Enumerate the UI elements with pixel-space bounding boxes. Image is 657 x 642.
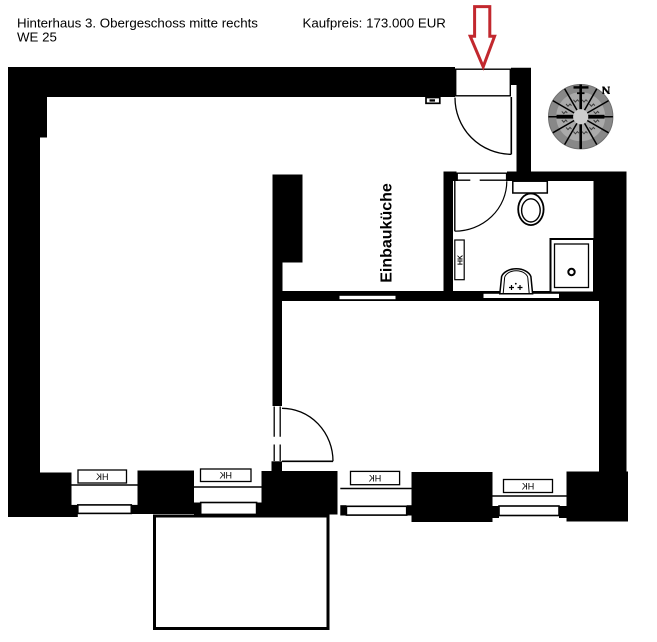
- svg-text:HK: HK: [369, 473, 382, 483]
- svg-text:Kaufpreis: 173.000 EUR: Kaufpreis: 173.000 EUR: [303, 16, 446, 31]
- svg-text:HK: HK: [522, 481, 535, 491]
- svg-text:HK: HK: [219, 470, 232, 480]
- svg-text:HK: HK: [96, 472, 109, 482]
- svg-text:WE 25: WE 25: [17, 30, 57, 45]
- svg-text:HK: HK: [457, 255, 464, 265]
- svg-text:Einbauküche: Einbauküche: [379, 183, 396, 283]
- svg-text:Hinterhaus 3. Obergeschoss mit: Hinterhaus 3. Obergeschoss mitte rechts: [17, 16, 258, 31]
